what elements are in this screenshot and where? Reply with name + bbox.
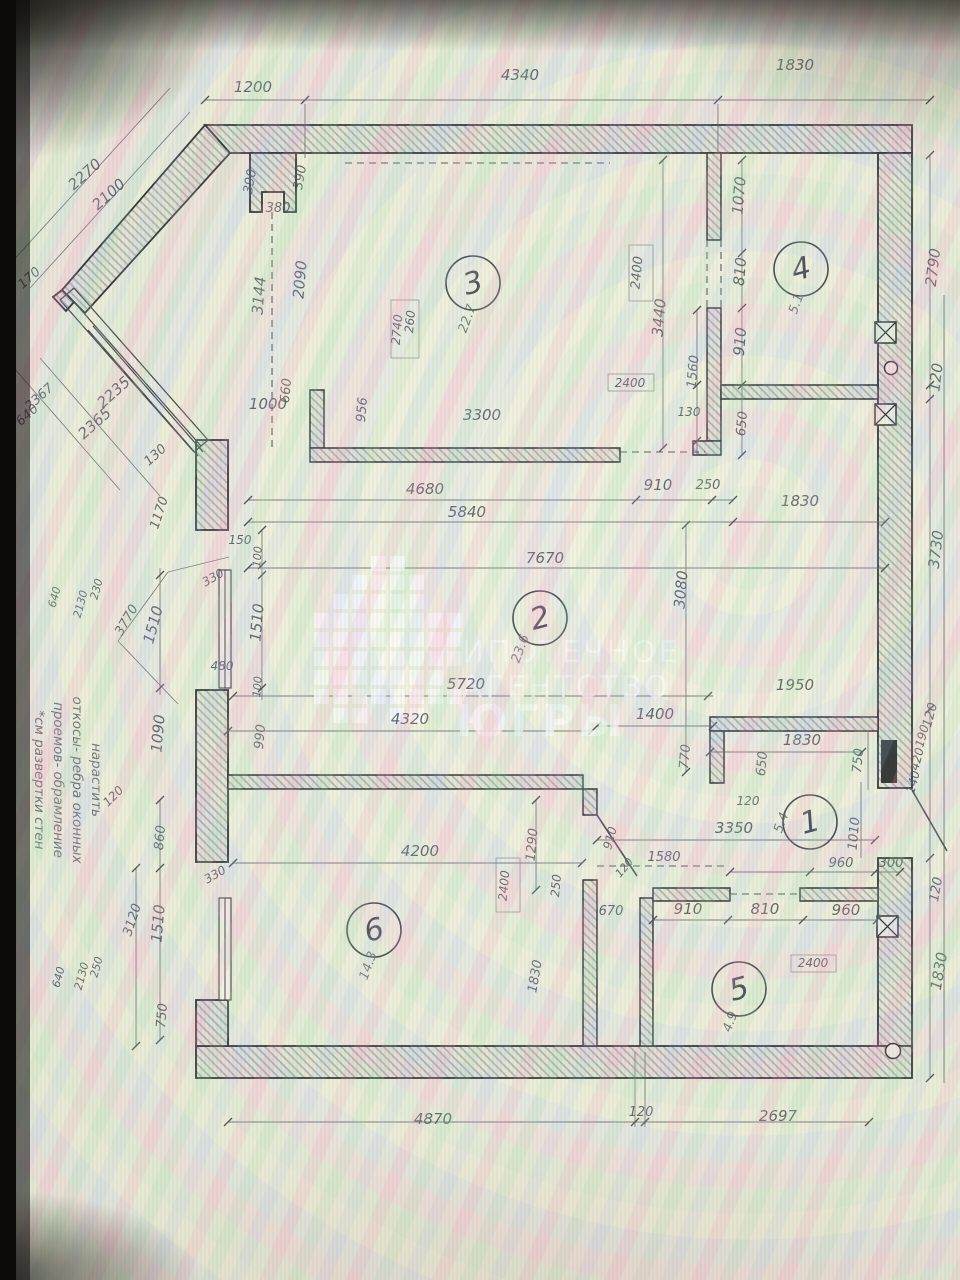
dimension-label: 4870: [414, 1110, 452, 1128]
watermark-pixel: [428, 632, 443, 647]
dimension-label: 150: [229, 533, 252, 547]
dimension-label: 190: [912, 723, 932, 749]
watermark-pixel: [390, 575, 405, 590]
dimension-label: 1830: [776, 56, 814, 74]
dimension-label: 3300: [463, 406, 501, 424]
dimension-label: 120: [925, 362, 946, 393]
dimension-label: 2697: [759, 1107, 798, 1125]
watermark-pixel: [371, 575, 386, 590]
dimension-label: 1560: [685, 355, 703, 389]
wall-left-pier3: [196, 1000, 228, 1046]
watermark-pixel: [352, 575, 367, 590]
screen-photo: ИПОТЕЧНОЕАГЕНТСТВОЮГРЫ 12004340183027901…: [0, 0, 960, 1280]
dimension-label: 810: [751, 900, 780, 918]
watermark-text-line: ЮГРЫ: [456, 696, 626, 747]
dimension-label: 3350: [715, 819, 753, 837]
dimension-label: 1090: [147, 714, 168, 754]
watermark-pixel: [371, 651, 386, 666]
watermark-pixel: [409, 651, 424, 666]
watermark-pixel: [352, 708, 367, 723]
annotation-note: нараститьоткосы- ребра оконныхпроемов- о…: [31, 696, 104, 864]
dimension-label: 960: [829, 856, 854, 871]
dimension-label: 650: [734, 411, 751, 437]
room-area: 4.9: [720, 1010, 741, 1035]
dimension-label: 1400: [636, 705, 674, 723]
watermark-pixel: [371, 670, 386, 685]
dimension-label: 5840: [448, 503, 486, 521]
partition: [583, 880, 597, 1046]
dimension-label: 120: [737, 794, 760, 808]
annotation-line: нарастить: [88, 743, 104, 817]
wall-bottom: [196, 1046, 912, 1078]
partition: [707, 308, 721, 441]
watermark-pixel: [333, 708, 348, 723]
watermark-logo: [314, 556, 462, 723]
dimension-label: 1830: [781, 492, 819, 510]
watermark-pixel: [390, 632, 405, 647]
watermark-pixel: [314, 613, 329, 628]
room-number: 2: [526, 599, 554, 638]
wall-right-upper: [878, 153, 912, 788]
dimension-label: 1830: [525, 959, 546, 994]
partition: [721, 385, 878, 399]
watermark-pixel: [390, 689, 405, 704]
room-number: 5: [725, 970, 753, 1009]
watermark-pixel: [314, 632, 329, 647]
dimension-label: 2270: [64, 155, 104, 194]
dimension-label: 3144: [248, 276, 269, 316]
watermark-pixel: [314, 651, 329, 666]
watermark-pixel: [371, 556, 386, 571]
dimension-label: 120: [927, 876, 946, 903]
dimension-label: 330: [202, 863, 229, 887]
room-number: 6: [360, 911, 388, 950]
dimension-label: 4320: [391, 710, 429, 728]
partition: [640, 898, 653, 1046]
watermark-pixel: [371, 632, 386, 647]
dimension-label: 5720: [447, 675, 485, 693]
room-number: 4: [787, 250, 815, 289]
dimension-label: 956: [354, 397, 371, 423]
partition: [707, 153, 721, 240]
dimension-label: 250: [548, 873, 564, 897]
watermark-pixel: [390, 651, 405, 666]
watermark-pixel: [409, 594, 424, 609]
wall-top: [205, 125, 912, 153]
dimension-label: 3440: [648, 298, 669, 338]
dimension-label: 1290: [524, 828, 542, 862]
dimension-label: 1200: [234, 78, 272, 96]
dimension-label: 130: [141, 442, 169, 470]
dimension-label: 2400: [496, 869, 513, 901]
watermark-pixel: [333, 689, 348, 704]
wall-left-pier1: [196, 440, 228, 530]
watermark-pixel: [390, 556, 405, 571]
partition: [310, 390, 324, 448]
watermark-pixel: [409, 670, 424, 685]
dimension-label: 2740: [389, 313, 406, 345]
dimension-label: 810: [730, 257, 750, 287]
dimension-label: 750: [850, 748, 867, 774]
watermark-pixel: [352, 594, 367, 609]
watermark-pixel: [409, 632, 424, 647]
watermark-pixel: [409, 689, 424, 704]
dimension-label: 3770: [112, 602, 142, 638]
partition: [800, 888, 878, 901]
dimension-label: 1510: [140, 604, 167, 646]
watermark-pixel: [333, 651, 348, 666]
watermark-pixel: [409, 613, 424, 628]
watermark-pixel: [371, 594, 386, 609]
dimension-label: 2400: [629, 256, 647, 290]
dimension-label: 1510: [246, 603, 267, 643]
dimension-label: 380: [266, 201, 291, 216]
watermark-pixel: [333, 632, 348, 647]
dimension-label: 670: [599, 904, 624, 919]
dimension-label: 2235: [93, 373, 133, 412]
walls: [53, 125, 912, 1078]
dimension-label: 390: [291, 164, 310, 191]
partition: [710, 717, 878, 731]
dimension-label: 120: [629, 1105, 654, 1120]
watermark-pixel: [390, 613, 405, 628]
dimension-label: 1010: [846, 817, 864, 851]
dimension-label: 1830: [783, 731, 821, 749]
watermark-pixel: [352, 632, 367, 647]
dimension-label: 250: [696, 478, 721, 493]
watermark-pixel: [314, 689, 329, 704]
watermark-pixel: [333, 594, 348, 609]
partition: [310, 448, 620, 462]
watermark-pixel: [428, 689, 443, 704]
watermark-pixel: [409, 575, 424, 590]
pipe-icon: [885, 362, 898, 375]
dimension-label: 960: [832, 901, 861, 919]
dimension-label: 640: [50, 965, 68, 989]
dimension-label: 230: [88, 577, 106, 601]
watermark-pixel: [390, 670, 405, 685]
dimension-label: 2130: [71, 589, 91, 619]
dimension-label: 2400: [798, 956, 829, 970]
room-area: 5.4: [771, 811, 792, 836]
watermark-pixel: [371, 689, 386, 704]
dimension-label: 2400: [615, 376, 646, 390]
dimension-label: 1000: [249, 395, 287, 413]
dimension-label: 4680: [406, 480, 444, 498]
watermark-pixel: [352, 613, 367, 628]
dimension-label: 130: [678, 405, 701, 419]
watermark-pixel: [352, 651, 367, 666]
dimension-label: 650: [754, 751, 771, 777]
wall-left-pier2: [196, 690, 228, 862]
watermark-pixel: [447, 632, 462, 647]
watermark-pixel: [428, 651, 443, 666]
dimension-label: 7670: [526, 549, 564, 567]
partition: [710, 731, 724, 783]
watermark-pixel: [333, 613, 348, 628]
dimension-label: 1170: [147, 495, 171, 531]
dimension-label: 3080: [670, 570, 691, 610]
watermark-pixel: [390, 594, 405, 609]
dimension-label: 2790: [922, 247, 945, 287]
dimension-label: 1510: [147, 904, 168, 944]
watermark-pixel: [371, 613, 386, 628]
watermark-pixel: [352, 689, 367, 704]
room-number: 1: [796, 803, 824, 842]
partition: [583, 789, 597, 815]
annotation-line: *см развертки стен: [31, 710, 47, 849]
dimension-label: 860: [152, 825, 169, 851]
dimension-label: 990: [252, 724, 269, 750]
watermark-pixel: [428, 670, 443, 685]
pipe-icon: [886, 1044, 901, 1059]
dimension-label: 3120: [120, 902, 144, 938]
watermark-text: ИПОТЕЧНОЕАГЕНТСТВОЮГРЫ: [456, 635, 681, 747]
dimension-label: 910: [644, 476, 673, 494]
watermark-pixel: [314, 670, 329, 685]
annotation-line: откосы- ребра оконных: [69, 696, 85, 864]
dimension-label: 2100: [88, 175, 128, 214]
floor-plan-drawing: ИПОТЕЧНОЕАГЕНТСТВОЮГРЫ 12004340183027901…: [0, 0, 960, 1280]
watermark-pixel: [333, 670, 348, 685]
annotation-line: проемов- обрамление: [50, 702, 66, 858]
dimension-label: 1950: [776, 676, 814, 694]
dimension-label: 2090: [289, 260, 310, 300]
room-number: 3: [459, 264, 487, 303]
watermark-pixel: [447, 651, 462, 666]
shaft-filled: [881, 740, 897, 783]
watermark-pixel: [352, 670, 367, 685]
watermark-pixel: [428, 613, 443, 628]
dimension-label: 120: [613, 856, 636, 880]
watermark-text-line: ИПОТЕЧНОЕ: [462, 635, 681, 670]
dimension-label: 1580: [647, 850, 680, 865]
dimension-label: 100: [250, 676, 265, 698]
dimension-label: 910: [730, 327, 750, 357]
dimension-label: 480: [211, 659, 234, 673]
wall-right-lower: [878, 858, 912, 1046]
dimension-label: 4200: [401, 842, 439, 860]
dimension-label: 1070: [728, 176, 749, 216]
dimension-label: 100: [250, 546, 265, 568]
room-area: 14.3: [357, 950, 381, 982]
wall-diagonal-bay: [62, 125, 230, 313]
dimension-label: 300: [879, 856, 904, 871]
watermark-pixel: [447, 613, 462, 628]
partition: [228, 775, 583, 789]
dimension-label: 770: [677, 744, 694, 770]
dimension-label: 750: [154, 1003, 171, 1029]
dimension-label: 1830: [927, 951, 951, 992]
dimension-label: 910: [674, 900, 703, 918]
dimension-label: 170: [15, 265, 43, 293]
dimension-label: 640: [46, 585, 64, 609]
dimension-label: 4340: [501, 66, 539, 84]
